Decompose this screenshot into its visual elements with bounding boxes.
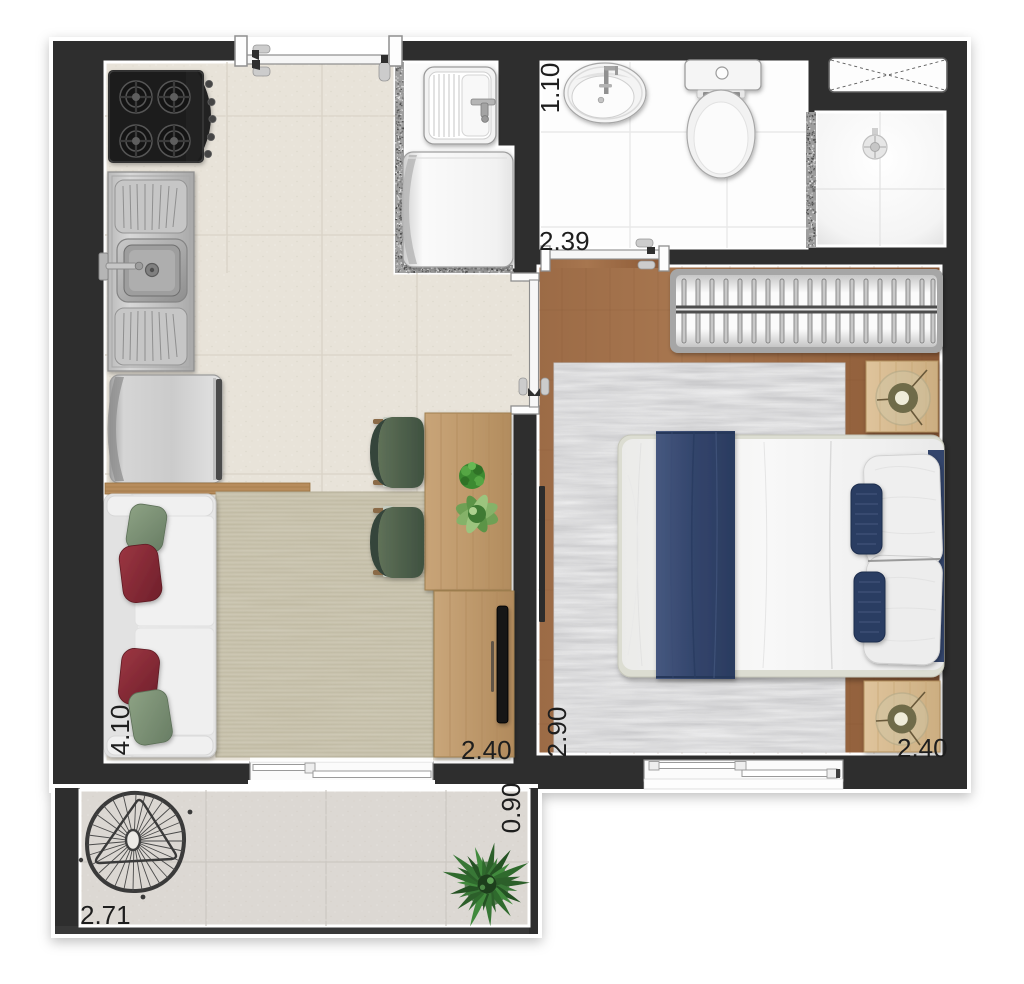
svg-text:4.10: 4.10: [105, 705, 135, 756]
svg-text:2.40: 2.40: [461, 735, 512, 765]
svg-text:2.39: 2.39: [539, 226, 590, 256]
svg-text:2.71: 2.71: [80, 900, 131, 930]
svg-text:0.90: 0.90: [496, 783, 526, 834]
svg-text:2.40: 2.40: [897, 733, 948, 763]
svg-text:1.10: 1.10: [535, 63, 565, 114]
svg-text:2.90: 2.90: [542, 707, 572, 758]
